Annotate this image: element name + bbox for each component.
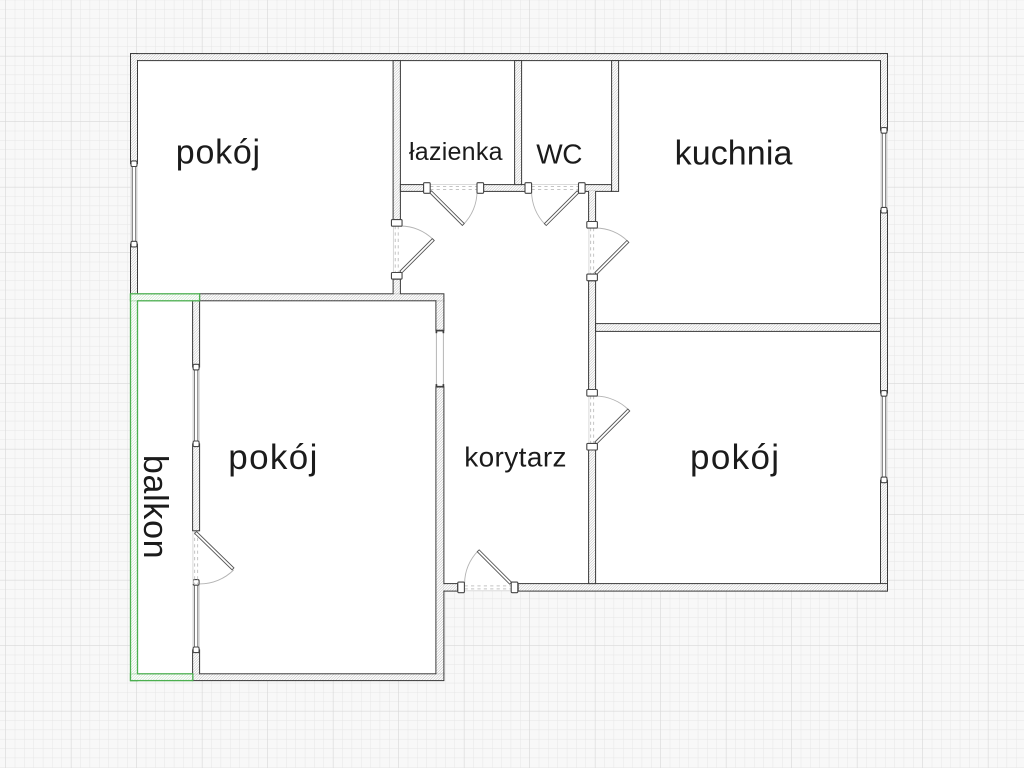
svg-text:łazienka: łazienka	[409, 138, 503, 166]
svg-text:balkon: balkon	[136, 455, 174, 559]
svg-text:pokój: pokój	[690, 438, 780, 477]
svg-text:pokój: pokój	[176, 134, 261, 172]
svg-text:pokój: pokój	[228, 438, 318, 477]
svg-text:korytarz: korytarz	[464, 441, 567, 472]
svg-text:WC: WC	[536, 138, 582, 169]
svg-text:kuchnia: kuchnia	[675, 135, 793, 173]
